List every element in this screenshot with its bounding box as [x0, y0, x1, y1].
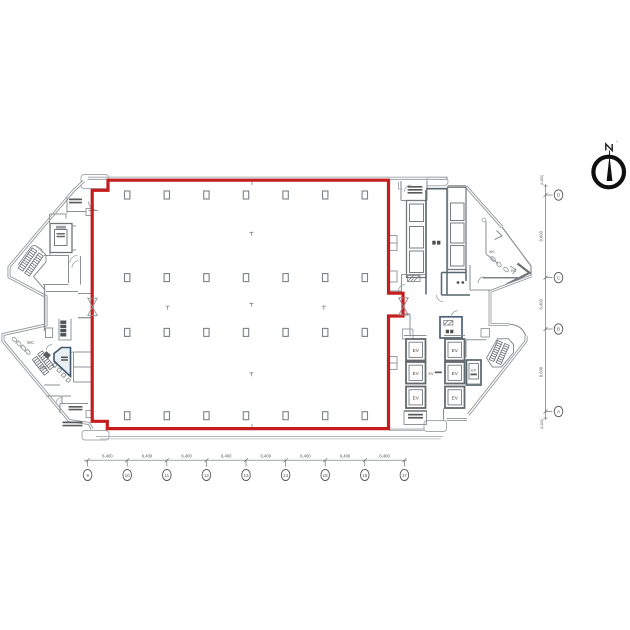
- svg-text:EV: EV: [452, 396, 459, 401]
- svg-text:9,600: 9,600: [539, 230, 544, 241]
- svg-text:6,400: 6,400: [261, 454, 272, 459]
- svg-text:17: 17: [402, 473, 408, 478]
- svg-text:9,600: 9,600: [539, 366, 544, 377]
- svg-text:11: 11: [164, 473, 169, 478]
- svg-text:EV: EV: [452, 348, 459, 353]
- svg-text:6,400: 6,400: [379, 454, 390, 459]
- svg-text:6,400: 6,400: [142, 454, 153, 459]
- svg-text:6,400: 6,400: [221, 454, 232, 459]
- svg-text:EV: EV: [413, 348, 420, 353]
- svg-text:EV: EV: [413, 371, 420, 376]
- svg-text:EV: EV: [452, 371, 459, 376]
- svg-text:6,400: 6,400: [539, 298, 544, 309]
- svg-text:(1,200): (1,200): [540, 419, 544, 429]
- svg-text:(1,200): (1,200): [540, 175, 544, 185]
- svg-text:RC: RC: [511, 269, 517, 273]
- svg-text:6,400: 6,400: [300, 454, 311, 459]
- svg-text:16: 16: [362, 473, 368, 478]
- svg-text:6,400: 6,400: [181, 454, 192, 459]
- svg-text:12: 12: [204, 473, 210, 478]
- svg-text:WC: WC: [27, 340, 34, 345]
- svg-text:EV: EV: [413, 396, 420, 401]
- svg-text:B: B: [557, 327, 560, 332]
- svg-text:6,400: 6,400: [340, 454, 351, 459]
- svg-text:14: 14: [283, 473, 289, 478]
- svg-text:EV: EV: [471, 369, 476, 373]
- svg-text:15: 15: [323, 473, 329, 478]
- svg-text:10: 10: [125, 473, 131, 478]
- svg-text:9: 9: [86, 473, 89, 478]
- svg-text:WC: WC: [489, 250, 495, 254]
- svg-text:13: 13: [243, 473, 249, 478]
- svg-text:EV: EV: [429, 372, 435, 376]
- svg-text:6,400: 6,400: [102, 454, 113, 459]
